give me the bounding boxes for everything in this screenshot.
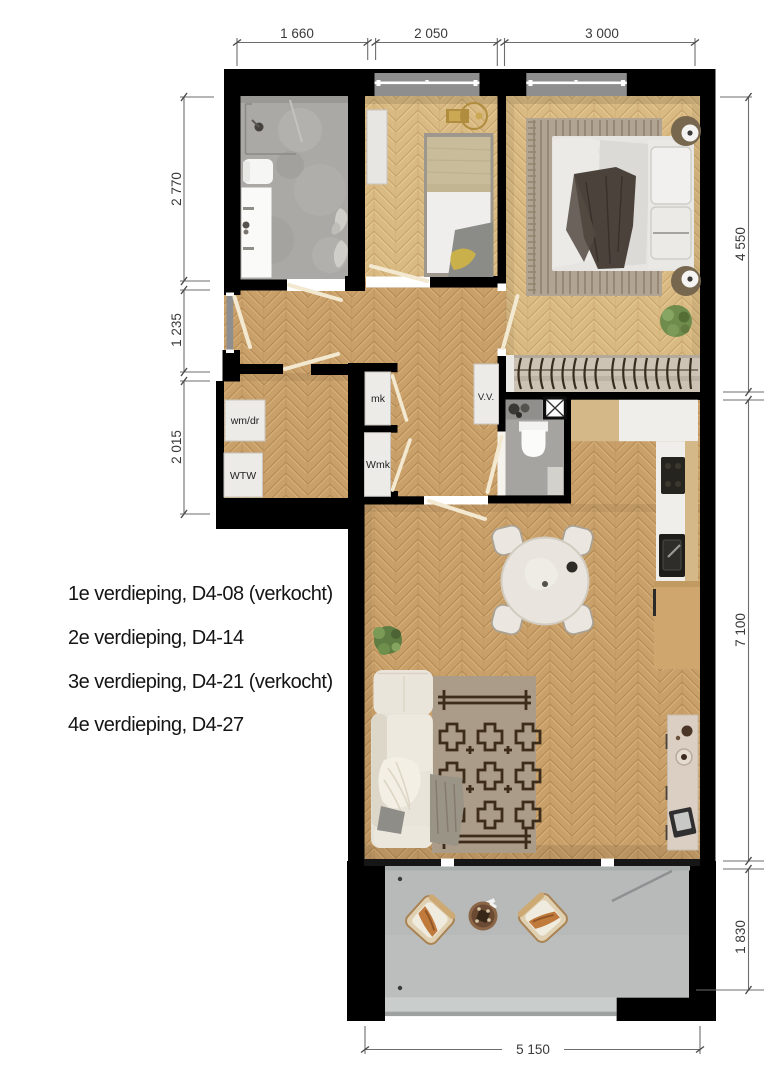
svg-text:2 770: 2 770 bbox=[169, 172, 184, 206]
svg-text:1 660: 1 660 bbox=[280, 26, 314, 41]
svg-text:7 100: 7 100 bbox=[733, 613, 748, 647]
svg-text:V.V.: V.V. bbox=[478, 392, 494, 403]
svg-text:4 550: 4 550 bbox=[733, 227, 748, 261]
svg-text:mk: mk bbox=[371, 393, 386, 405]
svg-text:2 015: 2 015 bbox=[169, 430, 184, 464]
svg-text:1 235: 1 235 bbox=[169, 313, 184, 347]
svg-text:2 050: 2 050 bbox=[414, 26, 448, 41]
svg-text:Wmk: Wmk bbox=[366, 459, 391, 471]
svg-text:1 830: 1 830 bbox=[733, 920, 748, 954]
svg-text:3 000: 3 000 bbox=[585, 26, 619, 41]
svg-text:WTW: WTW bbox=[230, 470, 256, 482]
svg-text:wm/dr: wm/dr bbox=[230, 415, 260, 427]
svg-text:5 150: 5 150 bbox=[516, 1042, 550, 1057]
